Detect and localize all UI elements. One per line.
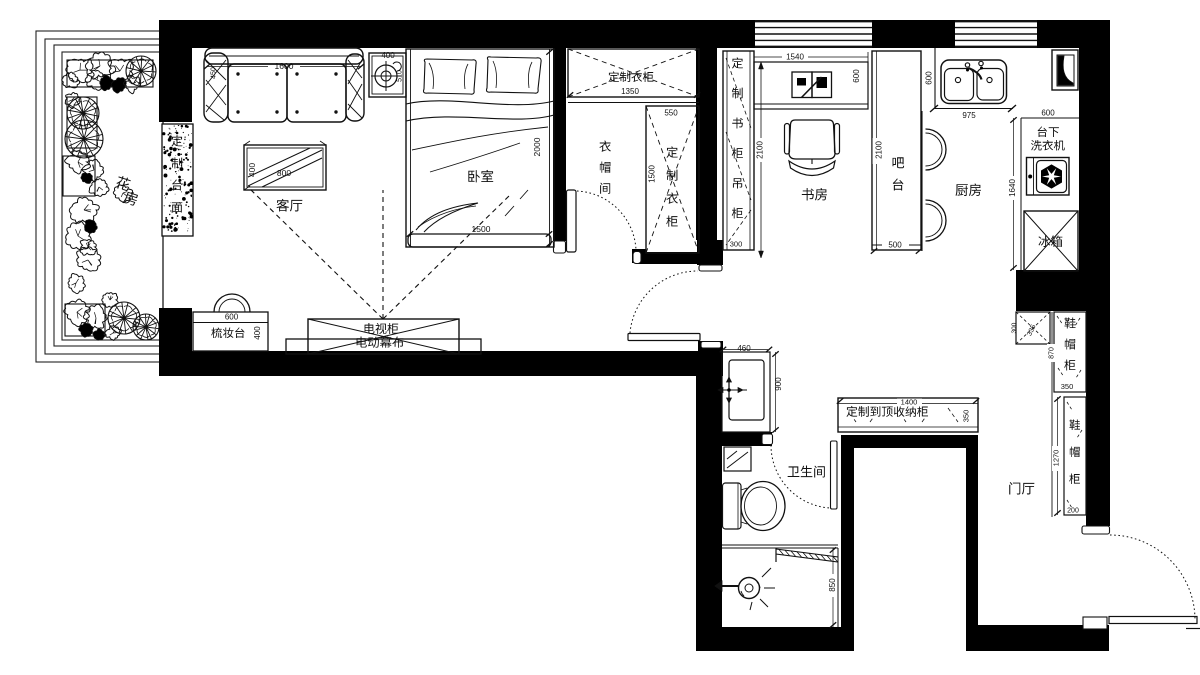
svg-text:300: 300 [1011,322,1018,333]
svg-text:1270: 1270 [1052,450,1061,467]
svg-text:975: 975 [962,111,976,120]
svg-text:1500: 1500 [472,224,491,234]
svg-text:1640: 1640 [1008,179,1017,197]
svg-text:870: 870 [1049,347,1056,359]
svg-text:510: 510 [397,70,404,82]
svg-text:460: 460 [737,344,751,353]
svg-text:400: 400 [381,51,395,60]
svg-text:350: 350 [1061,382,1074,391]
svg-text:1500: 1500 [647,165,656,183]
svg-text:900: 900 [774,377,783,391]
svg-text:2100: 2100 [755,141,764,159]
svg-text:600: 600 [924,71,933,85]
svg-text:350: 350 [962,410,971,423]
svg-text:1540: 1540 [786,52,804,61]
svg-text:850: 850 [828,578,837,592]
svg-text:400: 400 [247,163,257,177]
svg-text:1600: 1600 [275,61,294,71]
svg-text:2100: 2100 [874,141,883,159]
svg-text:600: 600 [1041,108,1055,117]
svg-text:2000: 2000 [532,137,542,156]
svg-text:600: 600 [225,312,239,321]
svg-text:1350: 1350 [621,87,639,96]
svg-text:1400: 1400 [901,398,918,407]
svg-text:300: 300 [730,240,743,249]
svg-text:450: 450 [211,67,218,79]
svg-text:600: 600 [852,69,861,83]
svg-text:550: 550 [664,108,678,117]
svg-text:200: 200 [1067,508,1079,515]
svg-text:800: 800 [277,168,291,178]
svg-text:400: 400 [253,326,262,340]
svg-text:500: 500 [888,240,902,249]
